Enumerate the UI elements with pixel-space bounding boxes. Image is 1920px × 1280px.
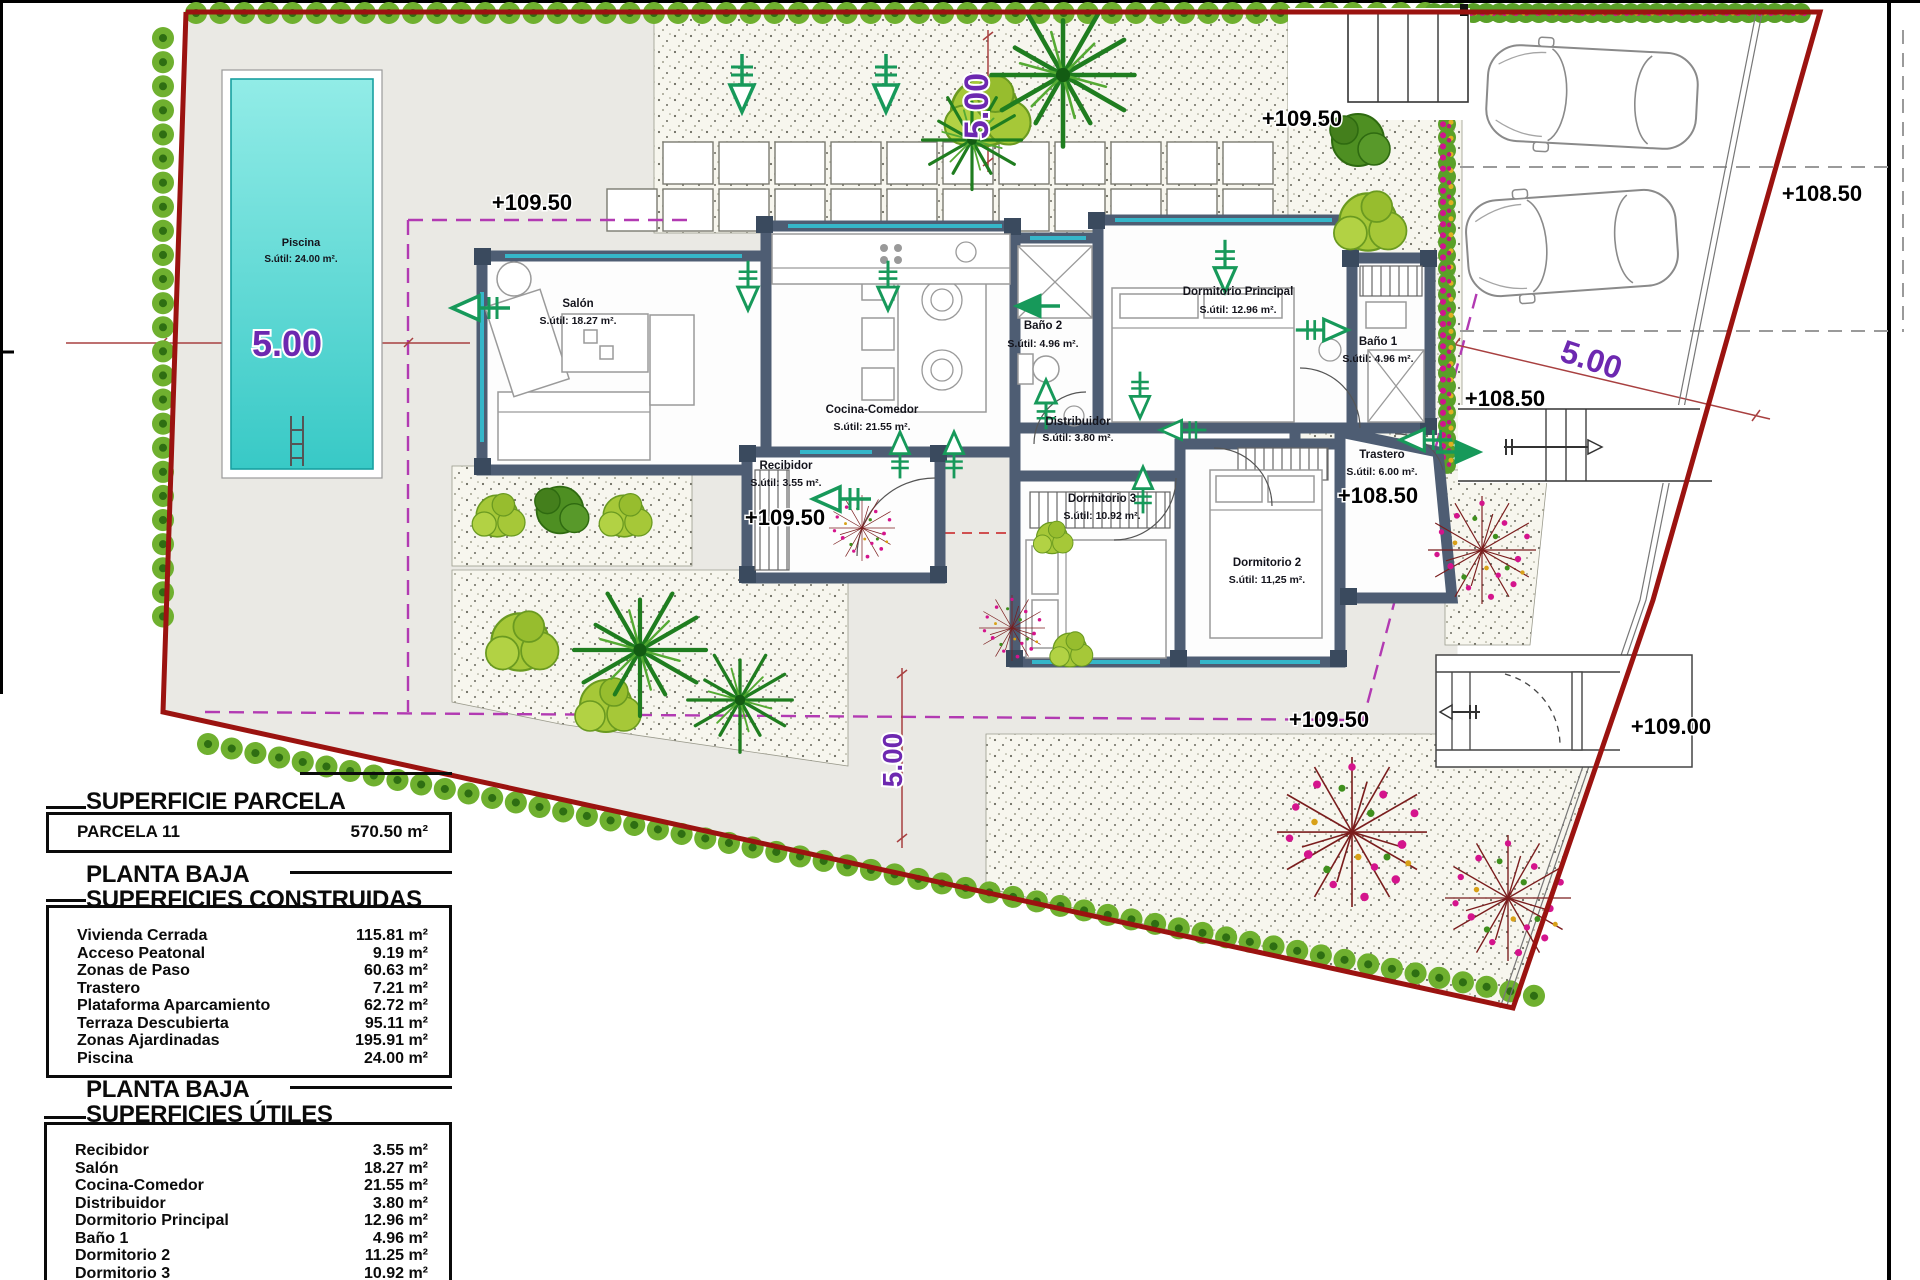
table-row: Dormitorio 211.25 m²	[47, 1247, 449, 1265]
room-label-dormp: Dormitorio Principal	[1183, 286, 1294, 298]
room-area-dorm2: S.útil: 11,25 m².	[1229, 574, 1306, 586]
table-row: Acceso Peatonal9.19 m²	[49, 945, 449, 963]
armchair-icon	[497, 262, 531, 296]
level-entry: +109.50	[745, 505, 825, 530]
table-leader-line	[300, 772, 452, 775]
stairs-right-icon	[1458, 405, 1712, 483]
pool-label: Piscina	[282, 237, 321, 249]
room-label-cocina: Cocina-Comedor	[826, 404, 919, 416]
room-label-distribuidor: Distribuidor	[1045, 416, 1111, 428]
level-bottom-right: +109.00	[1631, 714, 1711, 739]
dim-bottom: 5.00	[877, 733, 908, 788]
level-right-top: +108.50	[1782, 181, 1862, 206]
pool	[222, 70, 382, 478]
table-row: Baño 14.96 m²	[47, 1230, 449, 1248]
site-plan-drawing: Piscina S.útil: 24.00 m². Salón S.útil: …	[0, 0, 1920, 1280]
room-label-dorm3: Dormitorio 3	[1068, 493, 1136, 505]
room-area-banyo2: S.útil: 4.96 m².	[1007, 338, 1078, 350]
level-trastero: +108.50	[1338, 483, 1418, 508]
table-row: Recibidor3.55 m²	[47, 1142, 449, 1160]
table-row: Cocina-Comedor21.55 m²	[47, 1177, 449, 1195]
table-construidas-title1: PLANTA BAJA	[86, 861, 249, 889]
room-area-dormp: S.útil: 12.96 m².	[1199, 304, 1276, 316]
table-leader-line	[290, 1086, 452, 1089]
dim-top: 5.00	[958, 73, 996, 139]
table-row: PARCELA 11 570.50 m²	[49, 815, 449, 849]
room-label-salon: Salón	[562, 298, 593, 310]
gate	[1436, 655, 1692, 767]
room-area-salon: S.útil: 18.27 m².	[539, 315, 616, 327]
room-label-recibidor: Recibidor	[759, 460, 813, 472]
table-row: Terraza Descubierta95.11 m²	[49, 1015, 449, 1033]
car-icon	[1484, 35, 1700, 160]
room-area-trastero: S.útil: 6.00 m².	[1346, 466, 1417, 478]
pool-area: S.útil: 24.00 m².	[264, 254, 338, 265]
table-row: Vivienda Cerrada115.81 m²	[49, 927, 449, 945]
table-row: Zonas de Paso60.63 m²	[49, 962, 449, 980]
table-utiles: Recibidor3.55 m² Salón18.27 m² Cocina-Co…	[44, 1122, 452, 1280]
stairs-top-icon	[1288, 4, 1470, 120]
table-construidas: Vivienda Cerrada115.81 m² Acceso Peatona…	[46, 905, 452, 1078]
room-label-dorm2: Dormitorio 2	[1233, 557, 1301, 569]
table-row: Piscina24.00 m²	[49, 1050, 449, 1068]
toilet-icon	[1018, 354, 1033, 384]
table-utiles-title1: PLANTA BAJA	[86, 1076, 249, 1104]
tv-unit-icon	[650, 315, 694, 405]
level-right-mid: +108.50	[1465, 386, 1545, 411]
kitchen-counter-icon	[772, 234, 1010, 284]
room-area-dorm3: S.útil: 10.92 m².	[1063, 510, 1140, 522]
level-parking: +109.50	[1262, 106, 1342, 131]
table-row: Dormitorio Principal12.96 m²	[47, 1212, 449, 1230]
room-area-recibidor: S.útil: 3.55 m².	[750, 477, 821, 489]
table-row: Distribuidor3.80 m²	[47, 1195, 449, 1213]
level-terrace: +109.50	[492, 190, 572, 215]
table-row: Dormitorio 310.92 m²	[47, 1265, 449, 1280]
table-parcela: PARCELA 11 570.50 m²	[46, 812, 452, 853]
table-row: Salón18.27 m²	[47, 1160, 449, 1178]
room-label-banyo2: Baño 2	[1024, 320, 1062, 332]
table-row: Zonas Ajardinadas195.91 m²	[49, 1032, 449, 1050]
site-plan-sheet: Piscina S.útil: 24.00 m². Salón S.útil: …	[0, 0, 1920, 1280]
washbasin-icon	[1366, 302, 1406, 328]
room-label-trastero: Trastero	[1359, 449, 1404, 461]
table-row: Plataforma Aparcamiento62.72 m²	[49, 997, 449, 1015]
dim-pool: 5.00	[252, 323, 322, 364]
table-row: Trastero7.21 m²	[49, 980, 449, 998]
room-area-cocina: S.útil: 21.55 m².	[833, 421, 910, 433]
room-label-banyo1: Baño 1	[1359, 336, 1398, 348]
level-path: +109.50	[1289, 707, 1369, 732]
table-leader-line	[290, 871, 452, 874]
room-area-distribuidor: S.útil: 3.80 m².	[1042, 432, 1113, 444]
room-area-banyo1: S.útil: 4.96 m².	[1342, 353, 1413, 365]
